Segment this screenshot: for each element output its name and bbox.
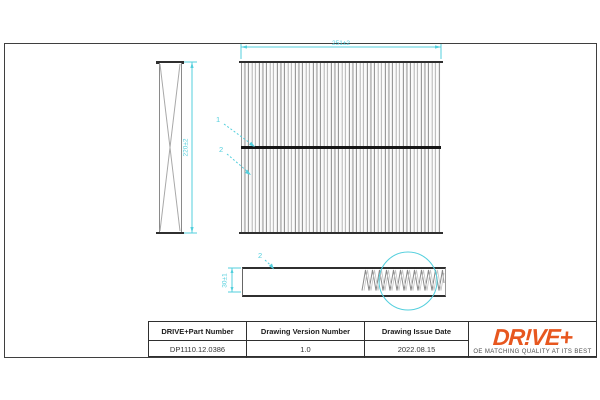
dim-profile-height-label: 30±1 xyxy=(222,265,229,297)
dim-side-height-label: 220±2 xyxy=(183,130,190,166)
profile-view xyxy=(242,267,446,297)
issue-date-value: 2022.08.15 xyxy=(365,341,469,358)
brand-logo-cell: DR!VE+ OE MATCHING QUALITY AT ITS BEST xyxy=(469,322,596,358)
profile-callout-number: 2 xyxy=(258,252,262,260)
issue-date-header: Drawing Issue Date xyxy=(365,322,469,341)
dim-main-width-label: 251±2 xyxy=(321,40,361,47)
side-view-bottom-cap xyxy=(156,232,184,235)
technical-drawing-page: 251±2 220±2 30±1 1 2 2 DRIVE+Part Number… xyxy=(0,0,600,400)
brand-logo: DR!VE+ xyxy=(492,326,573,348)
part-number-value: DP1110.12.0386 xyxy=(149,341,247,358)
center-support-band xyxy=(241,146,441,149)
side-view-body xyxy=(159,63,182,232)
main-view-bottom-cap xyxy=(239,232,443,234)
callout-number-2: 2 xyxy=(219,146,223,154)
version-header: Drawing Version Number xyxy=(247,322,365,341)
part-number-header: DRIVE+Part Number xyxy=(149,322,247,341)
callout-number-1: 1 xyxy=(216,116,220,124)
version-value: 1.0 xyxy=(247,341,365,358)
title-block: DRIVE+Part Number Drawing Version Number… xyxy=(148,321,597,357)
